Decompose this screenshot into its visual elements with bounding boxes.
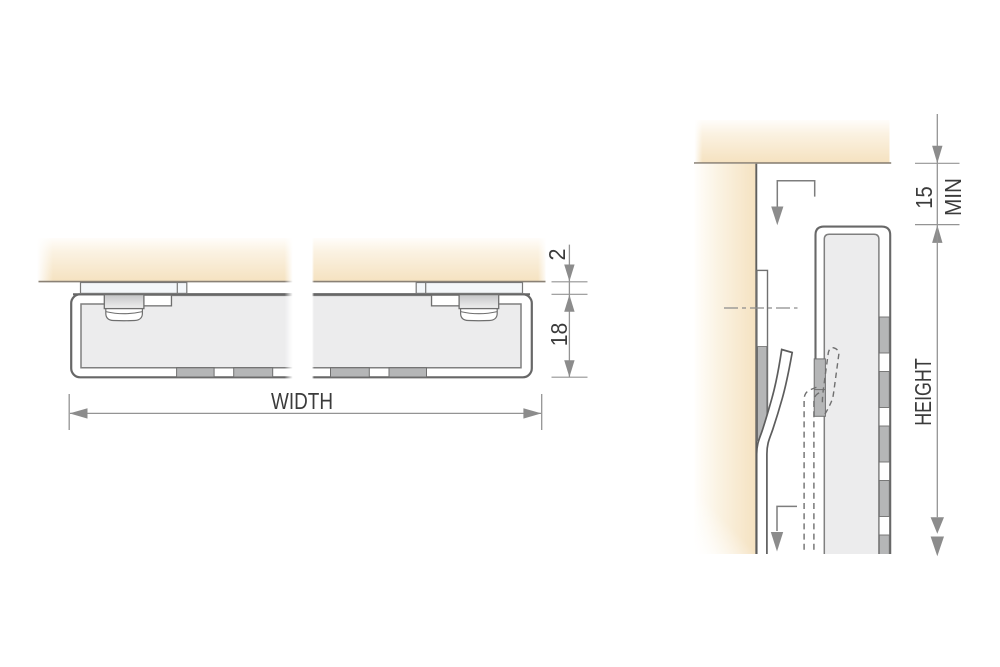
svg-text:WIDTH: WIDTH [271, 388, 333, 414]
svg-text:MIN: MIN [940, 178, 966, 216]
svg-text:HEIGHT: HEIGHT [910, 358, 936, 426]
svg-text:2: 2 [544, 249, 570, 261]
svg-text:15: 15 [911, 186, 937, 209]
svg-text:18: 18 [546, 323, 572, 347]
